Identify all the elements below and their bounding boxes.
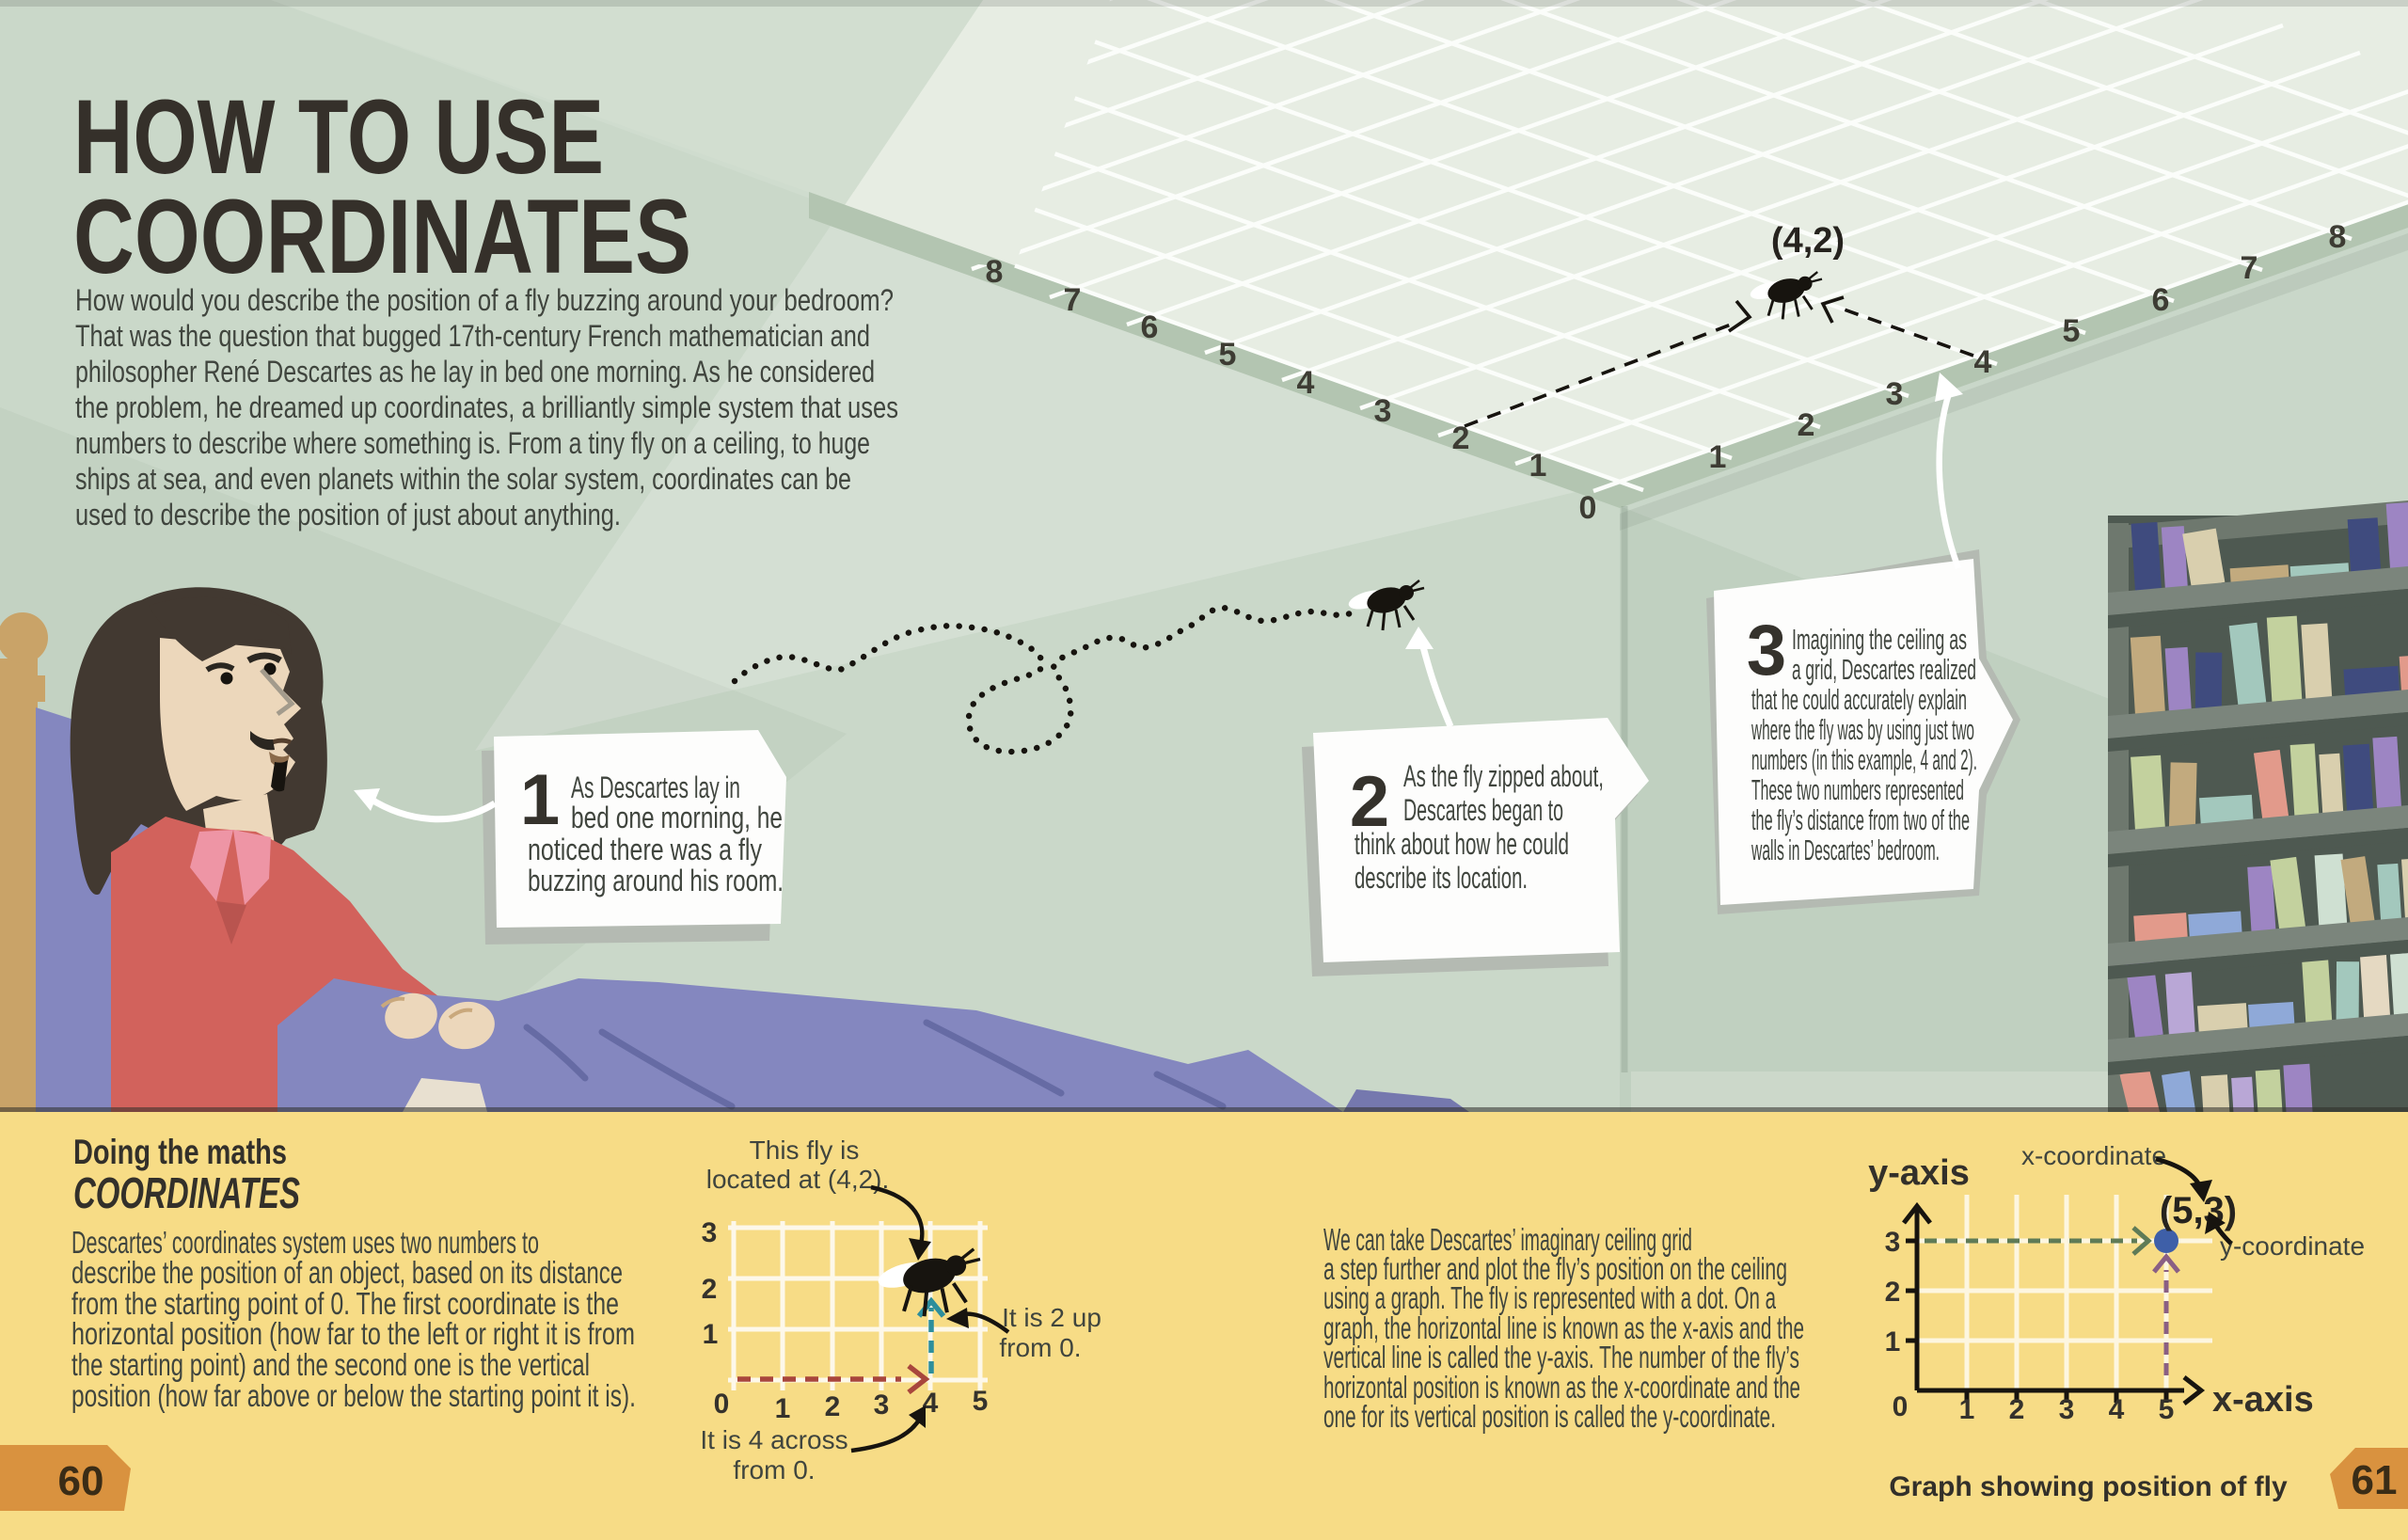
svg-text:4: 4 — [1297, 365, 1315, 401]
svg-text:3: 3 — [1747, 611, 1786, 691]
svg-text:5: 5 — [2159, 1394, 2175, 1425]
svg-text:y-axis: y-axis — [1868, 1153, 1970, 1193]
svg-text:0: 0 — [714, 1389, 730, 1420]
svg-text:6: 6 — [2152, 282, 2170, 318]
svg-text:Doing the maths: Doing the maths — [73, 1133, 287, 1171]
svg-text:It is 4 across: It is 4 across — [700, 1425, 848, 1454]
svg-text:This fly is: This fly is — [750, 1135, 860, 1165]
svg-text:1: 1 — [1709, 439, 1727, 475]
svg-text:2: 2 — [825, 1391, 841, 1422]
svg-text:7: 7 — [1064, 282, 1082, 318]
svg-text:y-coordinate: y-coordinate — [2220, 1231, 2365, 1261]
svg-text:COORDINATES: COORDINATES — [73, 1168, 300, 1217]
svg-text:8: 8 — [2329, 219, 2347, 255]
svg-text:Imagining the ceiling as: Imagining the ceiling as — [1792, 623, 1967, 656]
svg-text:located at (4,2).: located at (4,2). — [706, 1165, 890, 1194]
svg-text:x-coordinate: x-coordinate — [2021, 1141, 2166, 1170]
svg-text:5: 5 — [2063, 313, 2081, 349]
svg-text:2: 2 — [1798, 407, 1815, 443]
svg-text:from 0.: from 0. — [733, 1455, 815, 1484]
svg-text:As the fly zipped about,: As the fly zipped about, — [1403, 759, 1604, 793]
svg-text:(5,3): (5,3) — [2160, 1190, 2237, 1231]
svg-text:horizontal position (how far t: horizontal position (how far to the left… — [71, 1316, 635, 1351]
svg-text:ships at sea, and even planets: ships at sea, and even planets within th… — [75, 462, 851, 496]
svg-text:4: 4 — [2109, 1394, 2125, 1425]
svg-text:6: 6 — [1141, 310, 1159, 345]
svg-text:These two numbers represented: These two numbers represented — [1751, 773, 1964, 806]
svg-text:3: 3 — [1886, 376, 1904, 412]
svg-text:used to describe the position: used to describe the position of just ab… — [75, 498, 621, 532]
svg-text:3: 3 — [874, 1389, 890, 1421]
svg-text:describe the position of an ob: describe the position of an object, base… — [71, 1255, 623, 1290]
svg-text:2: 2 — [2009, 1394, 2025, 1425]
svg-text:3: 3 — [702, 1217, 718, 1248]
svg-text:describe its location.: describe its location. — [1354, 861, 1528, 895]
svg-text:4: 4 — [1974, 344, 1992, 380]
svg-text:that he could accurately expla: that he could accurately explain — [1751, 683, 1967, 716]
svg-text:from 0.: from 0. — [999, 1333, 1081, 1362]
svg-text:That was the question that bug: That was the question that bugged 17th-c… — [75, 319, 870, 353]
svg-text:position (how far above or bel: position (how far above or below the sta… — [71, 1378, 636, 1413]
svg-text:COORDINATES: COORDINATES — [73, 178, 691, 295]
svg-text:numbers to describe where some: numbers to describe where something is. … — [75, 426, 870, 460]
svg-text:(4,2): (4,2) — [1771, 221, 1845, 261]
svg-text:1: 1 — [703, 1319, 719, 1350]
svg-text:5: 5 — [1219, 337, 1237, 373]
svg-text:1: 1 — [1885, 1326, 1901, 1357]
svg-text:buzzing around his room.: buzzing around his room. — [528, 864, 784, 897]
svg-text:0: 0 — [1579, 490, 1597, 526]
svg-text:60: 60 — [58, 1458, 104, 1504]
svg-text:numbers (in this example, 4 an: numbers (in this example, 4 and 2). — [1751, 743, 1977, 776]
svg-text:noticed there was a fly: noticed there was a fly — [528, 833, 762, 866]
svg-text:a grid, Descartes realized: a grid, Descartes realized — [1792, 653, 1976, 686]
svg-text:1: 1 — [775, 1393, 791, 1424]
svg-text:8: 8 — [986, 254, 1004, 290]
svg-text:think about how he could: think about how he could — [1354, 827, 1569, 861]
svg-text:bed one morning, he: bed one morning, he — [571, 801, 783, 834]
svg-text:0: 0 — [1893, 1391, 1909, 1422]
svg-text:one for its vertical position: one for its vertical position is called … — [1323, 1399, 1776, 1434]
svg-text:It is 2 up: It is 2 up — [1002, 1303, 1101, 1332]
svg-text:7: 7 — [2241, 250, 2258, 286]
svg-text:As Descartes lay in: As Descartes lay in — [571, 770, 740, 804]
svg-text:Descartes began to: Descartes began to — [1403, 793, 1563, 827]
svg-text:2: 2 — [702, 1274, 718, 1305]
svg-text:where the fly was by using jus: where the fly was by using just two — [1751, 713, 1974, 746]
svg-text:the fly’s distance from two of: the fly’s distance from two of the — [1751, 803, 1970, 836]
svg-text:3: 3 — [1885, 1227, 1901, 1258]
svg-text:walls in Descartes’ bedroom.: walls in Descartes’ bedroom. — [1751, 834, 1940, 866]
svg-text:philosopher René Descartes as: philosopher René Descartes as he lay in … — [75, 355, 875, 389]
svg-text:3: 3 — [2059, 1394, 2075, 1425]
svg-text:the problem, he dreamed up coo: the problem, he dreamed up coordinates, … — [75, 390, 898, 424]
svg-text:x-axis: x-axis — [2212, 1380, 2314, 1420]
svg-text:3: 3 — [1374, 393, 1392, 429]
svg-text:2: 2 — [1885, 1277, 1901, 1308]
svg-text:5: 5 — [973, 1386, 989, 1417]
svg-text:1: 1 — [1959, 1394, 1975, 1425]
svg-text:the starting point) and the se: the starting point) and the second one i… — [71, 1347, 590, 1382]
svg-text:1: 1 — [1529, 448, 1547, 484]
svg-text:1: 1 — [520, 760, 560, 840]
svg-text:61: 61 — [2352, 1457, 2398, 1503]
svg-text:How would you describe the pos: How would you describe the position of a… — [75, 283, 894, 317]
svg-text:Graph showing position of fly: Graph showing position of fly — [1889, 1471, 2288, 1502]
